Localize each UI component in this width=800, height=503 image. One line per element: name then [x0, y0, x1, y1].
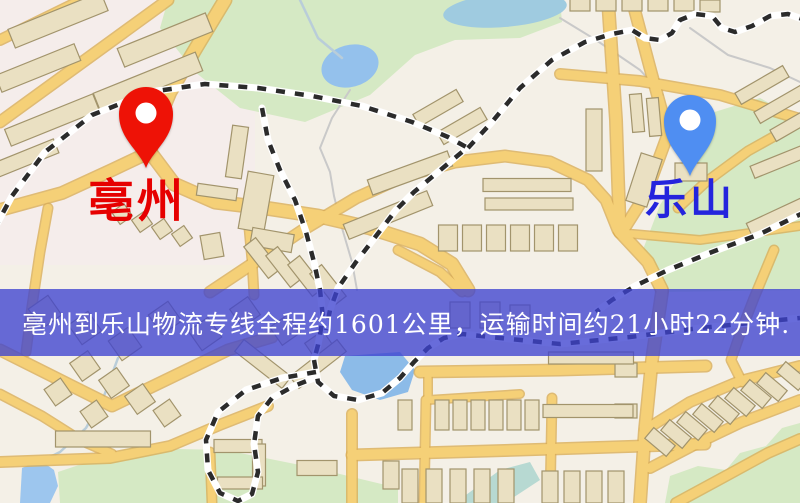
destination-pin-icon[interactable] [655, 92, 725, 182]
destination-label: 乐山 [645, 179, 735, 221]
map-canvas[interactable] [0, 0, 800, 503]
map-view[interactable]: 亳州 乐山 亳州到乐山物流专线全程约1601公里，运输时间约21小时22分钟. [0, 0, 800, 503]
pin-shape [119, 87, 173, 168]
origin-label: 亳州 [88, 178, 186, 224]
route-info-banner: 亳州到乐山物流专线全程约1601公里，运输时间约21小时22分钟. [0, 289, 800, 356]
pin-shape [664, 95, 716, 176]
origin-pin-icon[interactable] [111, 86, 181, 176]
route-info-text: 亳州到乐山物流专线全程约1601公里，运输时间约21小时22分钟. [0, 305, 790, 341]
